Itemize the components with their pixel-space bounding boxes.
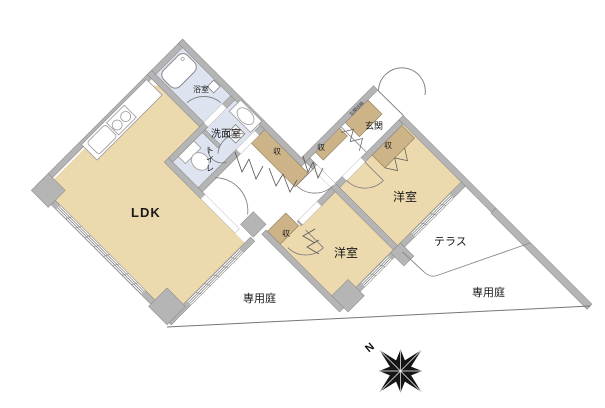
svg-text:N: N — [363, 341, 377, 355]
